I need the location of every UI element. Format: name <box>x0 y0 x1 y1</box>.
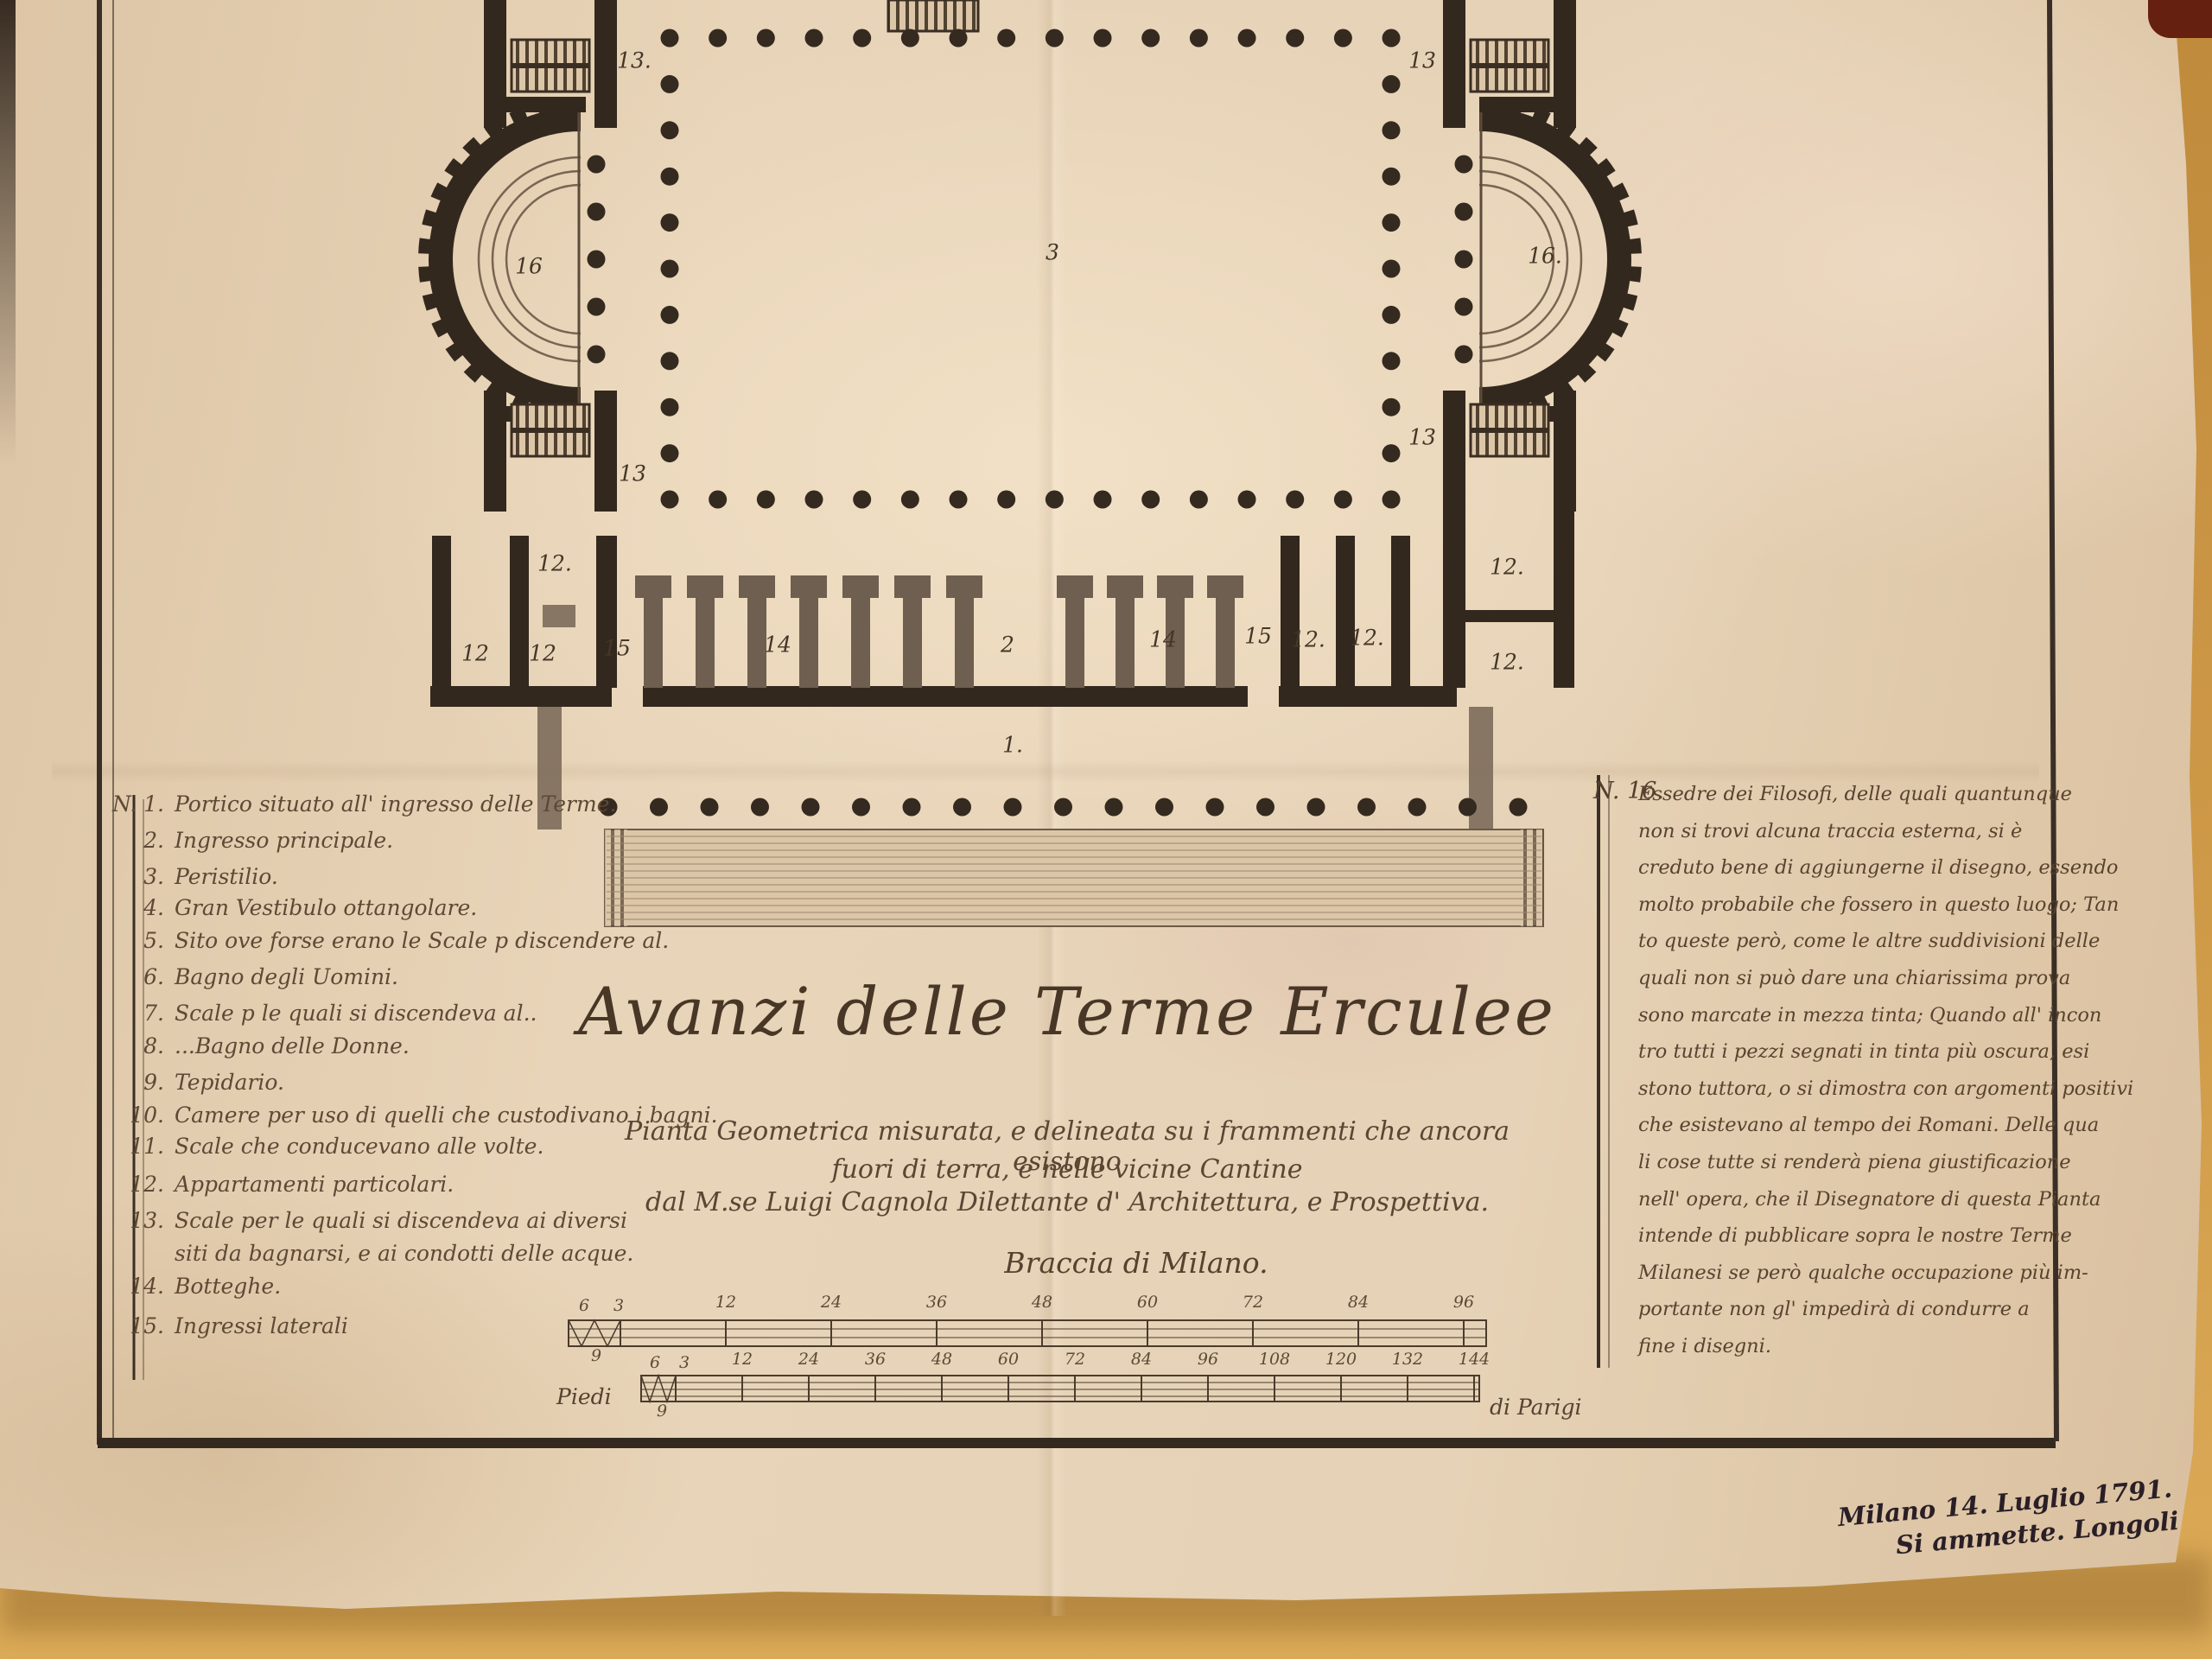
legend-item-number: N. 1. <box>107 791 164 817</box>
plan-number-label: 12. <box>1490 650 1524 675</box>
legend-item-text: Scale che conducevano alle volte. <box>175 1134 543 1159</box>
plan-number-label: 12. <box>1350 626 1384 651</box>
plan-number-label: 12. <box>1291 627 1325 652</box>
scale-tick-number: 84 <box>1348 1293 1369 1312</box>
legend-item-text: siti da bagnarsi, e ai condotti delle ac… <box>175 1241 633 1266</box>
legend-item-text: Camere per uso di quelli che custodivano… <box>175 1103 718 1128</box>
plan-number-label: 13 <box>1408 425 1436 450</box>
legend-item-number: 13. <box>107 1208 164 1233</box>
legend-item-number: 15. <box>107 1313 164 1338</box>
legend-item-text: Portico situato all' ingresso delle Term… <box>175 791 616 817</box>
legend-item-text: Scale p le quali si discendeva al.. <box>175 1001 537 1026</box>
note-line: li cose tutte si renderà piena giustific… <box>1638 1144 2075 1181</box>
scale-tick-number: 108 <box>1259 1350 1290 1369</box>
plan-number-label: 12. <box>1490 555 1524 580</box>
legend-item-number: 2. <box>107 828 164 853</box>
artwork-title: Avanzi delle Terme Erculee <box>570 973 1564 1050</box>
exedra-left <box>427 105 581 413</box>
scale-subdivision-number: 3 <box>679 1353 690 1372</box>
legend-item-text: ...Bagno delle Donne. <box>175 1033 410 1058</box>
legend-item-text: Tepidario. <box>175 1070 284 1095</box>
legend-item: 6.Bagno degli Uomini. <box>107 964 398 989</box>
scale-tick-number: 24 <box>798 1350 819 1369</box>
subtitle-line-3: dal M.se Luigi Cagnola Dilettante d' Arc… <box>570 1187 1564 1217</box>
legend-item-text: Bagno degli Uomini. <box>175 964 398 989</box>
note-line: creduto bene di aggiungerne il disegno, … <box>1638 849 2075 887</box>
legend-item-number: 10. <box>107 1103 164 1128</box>
plan-number-label: 14 <box>764 632 791 658</box>
scale-tick-number: 96 <box>1453 1293 1474 1312</box>
legend-item-text: Peristilio. <box>175 864 278 889</box>
plan-number-label: 3 <box>1046 240 1059 265</box>
subtitle-line-2: fuori di terra, e nelle vicine Cantine <box>570 1154 1564 1185</box>
note-line: quali non si può dare una chiarissima pr… <box>1638 960 2075 997</box>
legend-item-number: 6. <box>107 964 164 989</box>
legend-item-text: Scale per le quali si discendeva ai dive… <box>175 1208 627 1233</box>
note-line: tro tutti i pezzi segnati in tinta più o… <box>1638 1033 2075 1071</box>
legend-item: 12.Appartamenti particolari. <box>107 1172 454 1197</box>
legend-item-text: Gran Vestibulo ottangolare. <box>175 895 477 920</box>
scale-tick-number: 84 <box>1131 1350 1152 1369</box>
scale-tick-number: 96 <box>1198 1350 1218 1369</box>
plan-number-label: 12 <box>529 641 556 666</box>
legend-item-number: 3. <box>107 864 164 889</box>
legend-item: 2.Ingresso principale. <box>107 828 393 853</box>
scale-tick-number: 24 <box>821 1293 842 1312</box>
plan-number-label: 1. <box>1002 733 1023 758</box>
scale-tick-number: 72 <box>1243 1293 1263 1312</box>
scale-label-di-parigi: di Parigi <box>1490 1395 1582 1420</box>
note-line: Milanesi se però qualche occupazione più… <box>1638 1255 2075 1292</box>
scale-subdivision-number: 6 <box>579 1296 589 1315</box>
note-text-block: Essedre dei Filosofi, delle quali quantu… <box>1638 776 2075 1365</box>
legend-item: 10.Camere per uso di quelli che custodiv… <box>107 1103 718 1128</box>
legend-item: 14.Botteghe. <box>107 1274 281 1299</box>
scale-subdivision-number: 3 <box>613 1296 624 1315</box>
legend-item-number: 8. <box>107 1033 164 1058</box>
legend-item-number: 9. <box>107 1070 164 1095</box>
legend-item-text: Botteghe. <box>175 1274 281 1299</box>
plan-number-label: 13 <box>1408 48 1436 73</box>
note-line: fine i disegni. <box>1638 1328 2075 1365</box>
scale-tick-number: 120 <box>1325 1350 1357 1369</box>
note-line: molto probabile che fossero in questo lu… <box>1638 887 2075 924</box>
legend-item: 15.Ingressi laterali <box>107 1313 348 1338</box>
legend-item: 13.Scale per le quali si discendeva ai d… <box>107 1208 627 1233</box>
scale-tick-number: 132 <box>1392 1350 1423 1369</box>
scale-tick-number: 48 <box>931 1350 952 1369</box>
legend-item-number: 5. <box>107 928 164 953</box>
note-line: portante non gl' impedirà di condurre a <box>1638 1291 2075 1328</box>
plan-number-label: 15 <box>1244 624 1272 649</box>
plan-number-label: 12 <box>461 641 489 666</box>
scale-tick-number: 60 <box>998 1350 1019 1369</box>
legend-item-number: 14. <box>107 1274 164 1299</box>
legend-item: 8....Bagno delle Donne. <box>107 1033 410 1058</box>
legend-item-number: 12. <box>107 1172 164 1197</box>
legend-item-text: Sito ove forse erano le Scale p discende… <box>175 928 669 953</box>
note-line: che esistevano al tempo dei Romani. Dell… <box>1638 1107 2075 1144</box>
scale-label-braccia: Braccia di Milano. <box>998 1246 1274 1280</box>
scale-tick-number: 72 <box>1065 1350 1085 1369</box>
legend-item-number: 11. <box>107 1134 164 1159</box>
legend-item: 7.Scale p le quali si discendeva al.. <box>107 1001 537 1026</box>
scale-subdivision-number: 9 <box>657 1402 667 1421</box>
scale-tick-number: 36 <box>865 1350 886 1369</box>
plan-number-label: 2 <box>1001 632 1014 658</box>
legend-item-text: Appartamenti particolari. <box>175 1172 454 1197</box>
plan-number-label: 16 <box>515 254 543 279</box>
scale-tick-number: 48 <box>1032 1293 1052 1312</box>
scale-tick-number: 12 <box>715 1293 736 1312</box>
photograph-of-drawing: { "artwork": { "title": "Avanzi delle Te… <box>0 0 2212 1659</box>
plan-number-label: 13 <box>619 461 646 486</box>
note-line: Essedre dei Filosofi, delle quali quantu… <box>1638 776 2075 813</box>
plan-number-label: 14 <box>1149 627 1177 652</box>
legend-item-number: 4. <box>107 895 164 920</box>
scale-tick-number: 144 <box>1459 1350 1490 1369</box>
note-line: stono tuttora, o si dimostra con argomen… <box>1638 1071 2075 1108</box>
scale-subdivision-number: 6 <box>650 1353 660 1372</box>
note-line: nell' opera, che il Disegnatore di quest… <box>1638 1181 2075 1218</box>
legend-item: siti da bagnarsi, e ai condotti delle ac… <box>107 1241 633 1266</box>
legend-item: N. 1.Portico situato all' ingresso delle… <box>107 791 616 817</box>
legend-item: 9.Tepidario. <box>107 1070 284 1095</box>
plan-number-label: 16. <box>1528 244 1562 269</box>
plan-number-label: 13. <box>617 48 652 73</box>
scale-subdivision-number: 9 <box>591 1346 601 1365</box>
note-line: intende di pubblicare sopra le nostre Te… <box>1638 1217 2075 1255</box>
legend-item: 4.Gran Vestibulo ottangolare. <box>107 895 477 920</box>
legend-item: 11.Scale che conducevano alle volte. <box>107 1134 543 1159</box>
legend-item: 3.Peristilio. <box>107 864 278 889</box>
plan-number-label: 15 <box>603 636 631 661</box>
note-line: non si trovi alcuna traccia esterna, si … <box>1638 813 2075 850</box>
scale-label-piedi: Piedi <box>556 1384 612 1409</box>
scale-tick-number: 12 <box>732 1350 753 1369</box>
scale-tick-number: 60 <box>1137 1293 1158 1312</box>
legend-item-number: 7. <box>107 1001 164 1026</box>
legend-item: 5.Sito ove forse erano le Scale p discen… <box>107 928 669 953</box>
note-line: to queste però, come le altre suddivisio… <box>1638 923 2075 960</box>
scale-tick-number: 36 <box>926 1293 947 1312</box>
note-line: sono marcate in mezza tinta; Quando all'… <box>1638 997 2075 1034</box>
legend-item-text: Ingressi laterali <box>175 1313 348 1338</box>
plan-number-label: 12. <box>537 551 572 576</box>
legend-item-text: Ingresso principale. <box>175 828 393 853</box>
